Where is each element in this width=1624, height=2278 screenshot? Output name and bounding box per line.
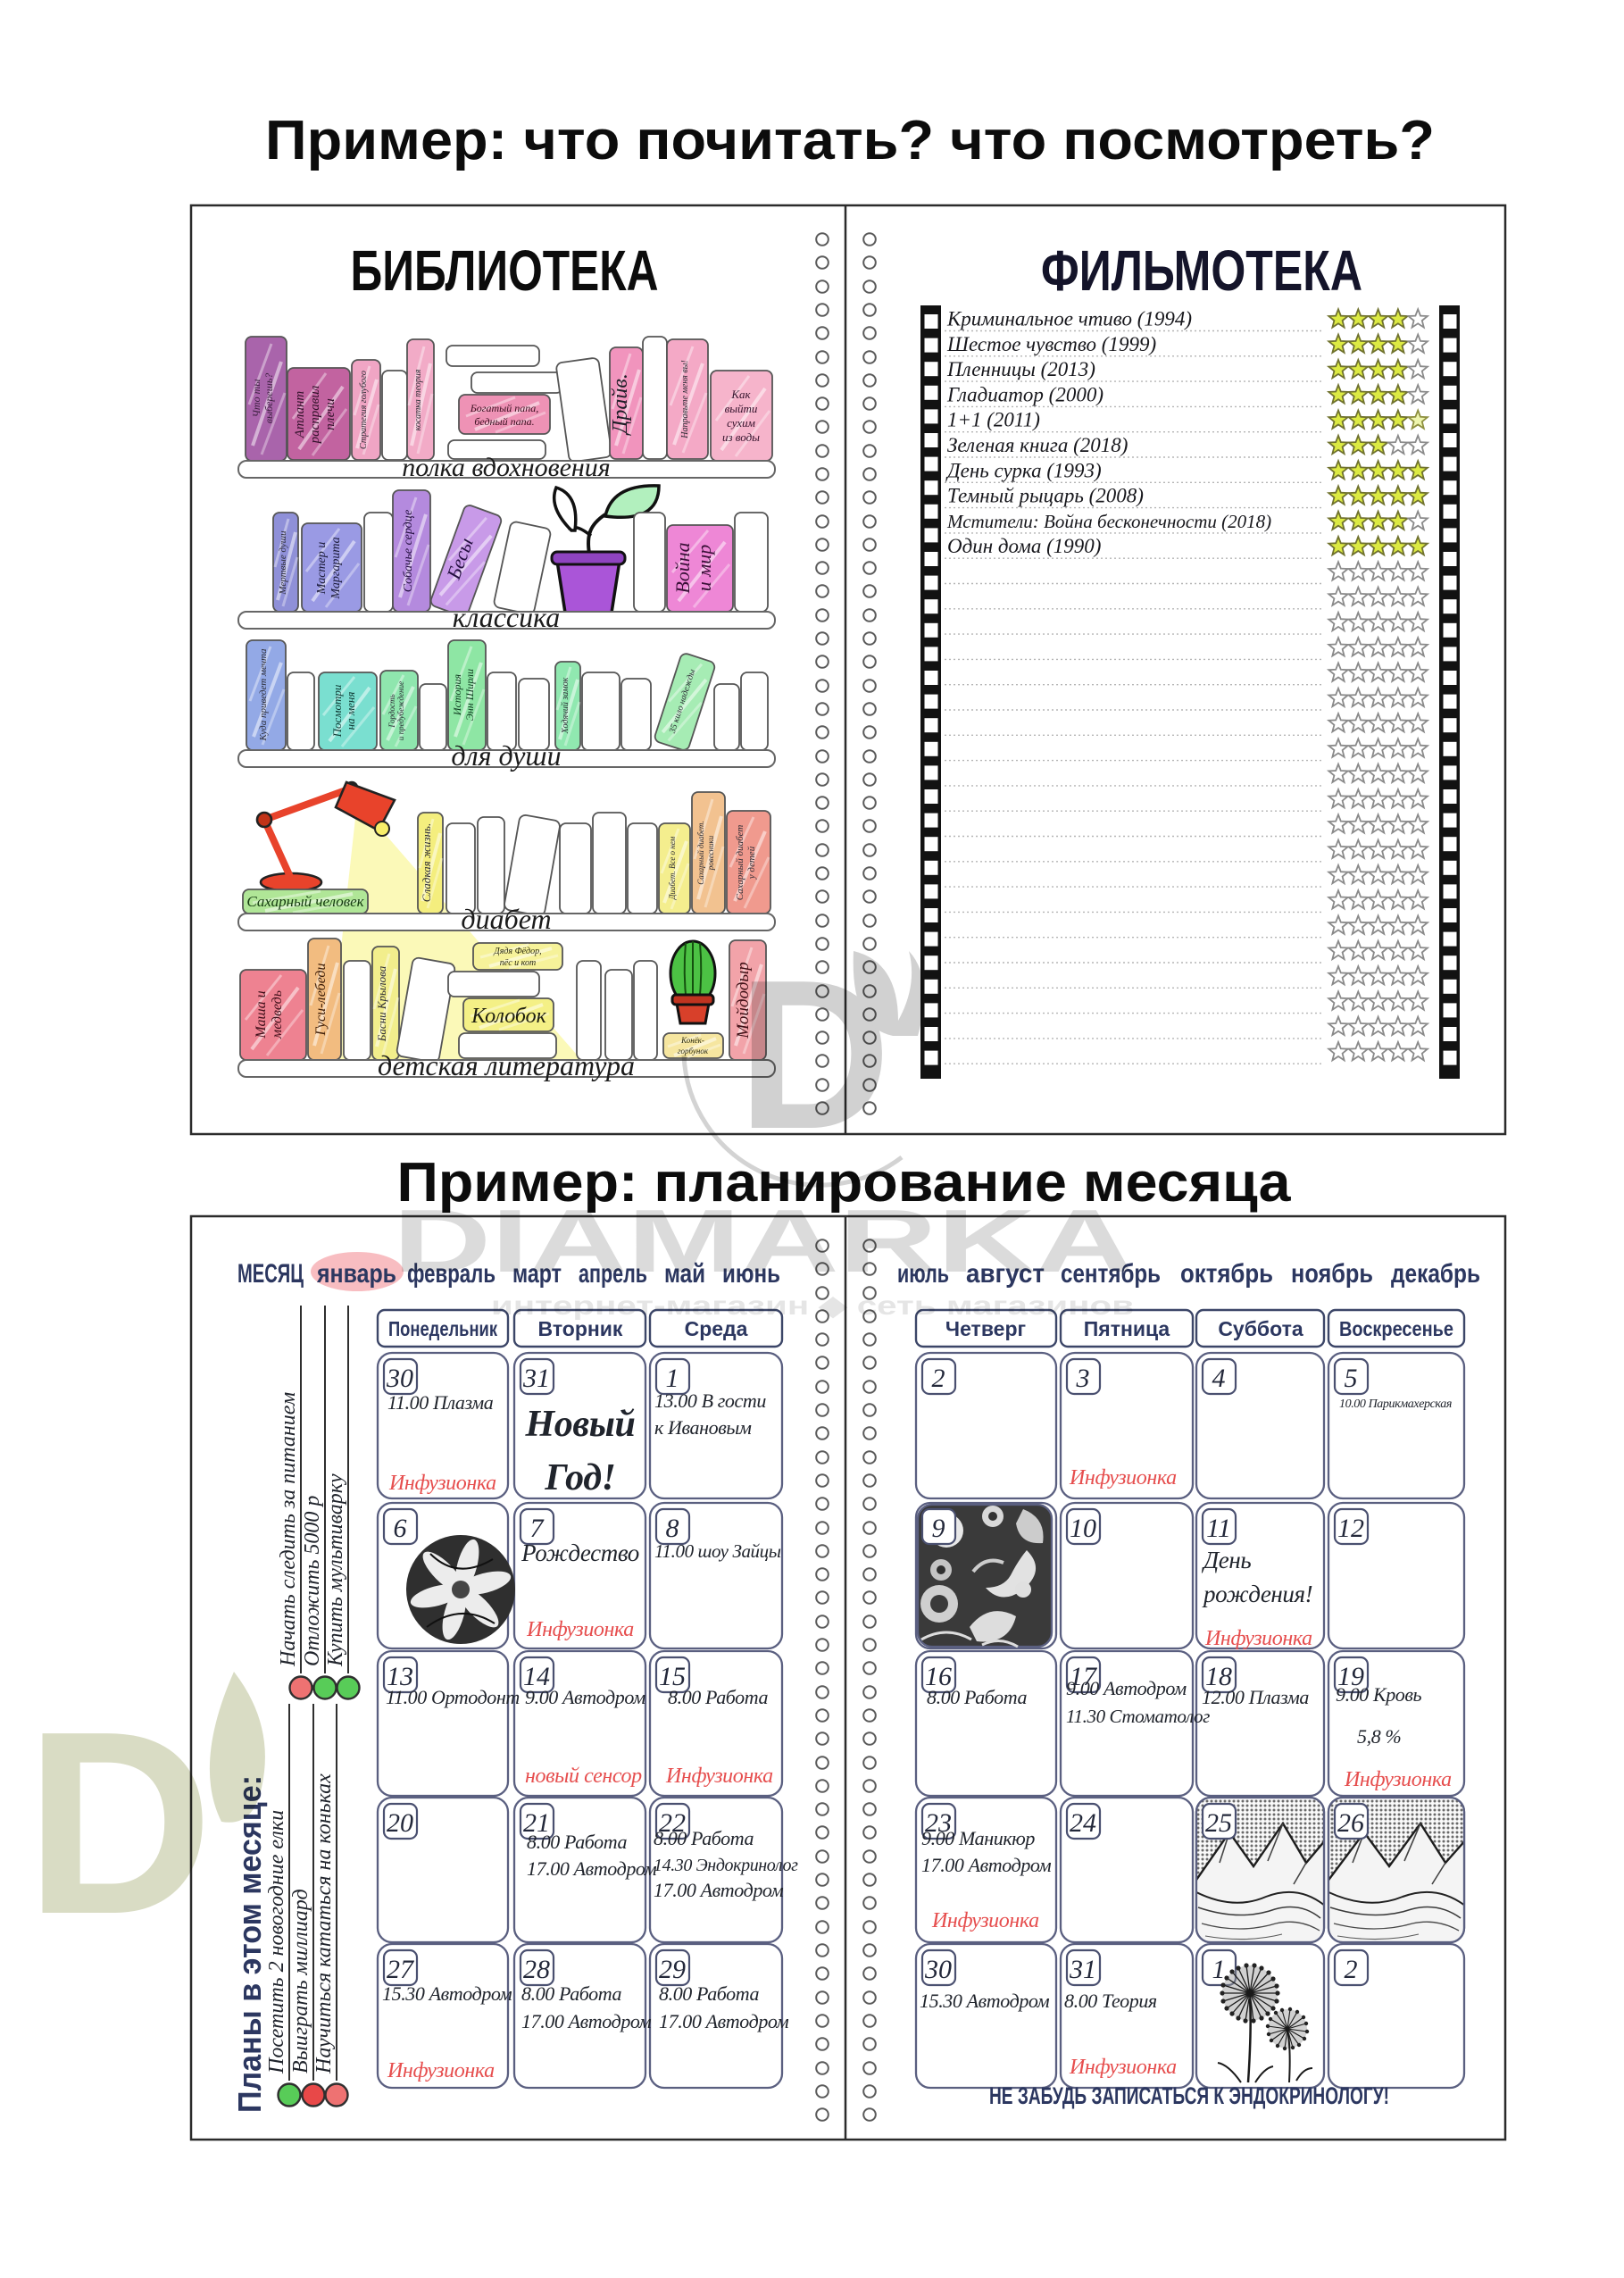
- svg-text:День: День: [1201, 1547, 1251, 1573]
- svg-text:15.30 Автодром: 15.30 Автодром: [382, 1982, 512, 2005]
- svg-text:8: 8: [666, 1514, 679, 1543]
- svg-text:ноябрь: ноябрь: [1291, 1259, 1373, 1289]
- svg-text:9: 9: [932, 1514, 945, 1543]
- svg-text:Басни Крылова: Басни Крылова: [375, 965, 388, 1042]
- svg-text:17.00 Автодром: 17.00 Автодром: [921, 1854, 1052, 1876]
- svg-text:8.00 Работа: 8.00 Работа: [527, 1831, 628, 1853]
- svg-text:Гуси-лебеди: Гуси-лебеди: [313, 963, 329, 1036]
- svg-text:Посмотри: Посмотри: [330, 684, 344, 738]
- svg-text:Гордость: Гордость: [387, 694, 396, 728]
- svg-text:из воды: из воды: [722, 430, 760, 444]
- svg-text:8.00 Работа: 8.00 Работа: [654, 1827, 754, 1849]
- svg-text:и предубеждение: и предубеждение: [396, 681, 405, 740]
- svg-text:17.00 Автодром: 17.00 Автодром: [654, 1879, 784, 1901]
- svg-text:9.00 Автодром: 9.00 Автодром: [1066, 1677, 1187, 1699]
- svg-text:классика: классика: [453, 601, 561, 633]
- svg-text:11.00 Ортодонт: 11.00 Ортодонт: [386, 1686, 520, 1708]
- svg-text:1+1 (2011): 1+1 (2011): [947, 409, 1040, 431]
- svg-text:БИБЛИОТЕКА: БИБЛИОТЕКА: [351, 238, 659, 303]
- svg-text:24: 24: [1070, 1808, 1096, 1838]
- svg-text:25: 25: [1205, 1808, 1232, 1838]
- svg-text:полка вдохновения: полка вдохновения: [402, 453, 611, 482]
- svg-text:плечи: плечи: [323, 398, 337, 430]
- svg-text:9.00 Кровь: 9.00 Кровь: [1336, 1683, 1422, 1706]
- svg-text:Инфузионка: Инфузионка: [388, 1472, 496, 1495]
- svg-text:Диабет. Все о нем: Диабет. Все о нем: [668, 836, 677, 900]
- svg-text:Суббота: Суббота: [1218, 1317, 1303, 1340]
- svg-text:Как: Как: [730, 388, 751, 401]
- svg-text:8.00 Работа: 8.00 Работа: [927, 1686, 1028, 1708]
- svg-text:27: 27: [387, 1955, 415, 1984]
- svg-text:Война: Война: [671, 542, 694, 593]
- svg-text:диабет: диабет: [461, 903, 551, 935]
- svg-text:Драйв.: Драйв.: [609, 373, 632, 436]
- svg-text:Сладкая жизнь.: Сладкая жизнь.: [420, 823, 433, 902]
- svg-text:Инфузионка: Инфузионка: [1069, 1466, 1177, 1489]
- svg-text:10: 10: [1070, 1514, 1096, 1543]
- svg-text:медведь: медведь: [270, 990, 285, 1039]
- svg-text:4: 4: [1212, 1364, 1226, 1393]
- svg-text:28: 28: [523, 1955, 550, 1984]
- svg-text:5,8 %: 5,8 %: [1357, 1725, 1401, 1748]
- svg-text:Выиграть миллиард: Выиграть миллиард: [289, 1889, 312, 2074]
- svg-text:расправил: расправил: [308, 385, 322, 444]
- svg-text:Собачье сердце: Собачье сердце: [402, 510, 415, 593]
- svg-text:Атлант: Атлант: [293, 391, 307, 439]
- svg-text:Гладиатор (2000): Гладиатор (2000): [946, 383, 1103, 405]
- svg-text:горбунок: горбунок: [678, 1047, 709, 1056]
- svg-text:13.00 В гости: 13.00 В гости: [654, 1389, 766, 1412]
- svg-text:Шестое чувство (1999): Шестое чувство (1999): [946, 333, 1156, 355]
- svg-text:Посетить 2 новогодние елки: Посетить 2 новогодние елки: [265, 1810, 288, 2074]
- svg-text:косатка теория: косатка теория: [413, 369, 423, 430]
- svg-text:Инфузионка: Инфузионка: [931, 1909, 1039, 1932]
- svg-text:11.00 Плазма: 11.00 Плазма: [387, 1391, 494, 1414]
- svg-text:новый сенсор: новый сенсор: [525, 1765, 642, 1788]
- svg-text:10.00 Парикмахерская: 10.00 Парикмахерская: [1339, 1398, 1452, 1411]
- svg-text:12: 12: [1337, 1514, 1364, 1543]
- svg-text:8.00 Работа: 8.00 Работа: [668, 1686, 769, 1708]
- svg-text:Сахарный диабет.: Сахарный диабет.: [696, 821, 705, 885]
- svg-text:Новый: Новый: [525, 1404, 636, 1445]
- svg-text:пёс и кот: пёс и кот: [500, 958, 536, 968]
- svg-text:Зеленая книга (2018): Зеленая книга (2018): [947, 434, 1128, 456]
- svg-text:выберешь?: выберешь?: [262, 373, 275, 424]
- svg-text:Мертвые души: Мертвые души: [278, 530, 288, 596]
- svg-text:ровесники: ровесники: [706, 835, 715, 871]
- svg-text:Маргарита: Маргарита: [329, 537, 343, 599]
- svg-text:МЕСЯЦ: МЕСЯЦ: [237, 1259, 304, 1289]
- svg-text:Ходячий замок: Ходячий замок: [561, 677, 570, 734]
- svg-text:Год!: Год!: [544, 1457, 615, 1498]
- svg-text:Дядя Фёдор,: Дядя Фёдор,: [493, 947, 541, 956]
- svg-text:октябрь: октябрь: [1180, 1259, 1273, 1289]
- svg-text:8.00 Теория: 8.00 Теория: [1064, 1990, 1157, 2012]
- svg-text:5: 5: [1345, 1364, 1358, 1393]
- svg-text:20: 20: [387, 1808, 413, 1838]
- svg-text:бедный папа.: бедный папа.: [474, 415, 534, 428]
- svg-text:Конёк-: Конёк-: [680, 1036, 704, 1045]
- svg-text:Богатый папа,: Богатый папа,: [470, 402, 539, 414]
- svg-text:Инфузионка: Инфузионка: [387, 2059, 495, 2082]
- svg-text:Инфузионка: Инфузионка: [1069, 2056, 1177, 2079]
- svg-text:11: 11: [1206, 1514, 1231, 1543]
- svg-text:День сурка (1993): День сурка (1993): [945, 459, 1102, 481]
- svg-text:интернет-магазин ◆ сеть магази: интернет-магазин ◆ сеть магазинов: [491, 1291, 1134, 1321]
- svg-text:26: 26: [1337, 1808, 1364, 1838]
- svg-text:6: 6: [394, 1514, 407, 1543]
- svg-text:8.00 Работа: 8.00 Работа: [521, 1982, 622, 2005]
- svg-text:1: 1: [1212, 1955, 1226, 1984]
- svg-text:рождения!: рождения!: [1202, 1581, 1312, 1607]
- svg-text:11.00 шоу Зайцы: 11.00 шоу Зайцы: [654, 1540, 781, 1562]
- svg-text:Криминальное чтиво (1994): Криминальное чтиво (1994): [946, 308, 1192, 330]
- svg-text:14.30 Эндокринолог: 14.30 Эндокринолог: [654, 1856, 798, 1875]
- svg-text:ФИЛЬМОТЕКА: ФИЛЬМОТЕКА: [1041, 238, 1362, 303]
- svg-text:Купить мультиварку: Купить мультиварку: [324, 1473, 347, 1667]
- svg-text:Что ты: Что ты: [250, 380, 262, 418]
- svg-text:Инфузионка: Инфузионка: [1204, 1627, 1312, 1650]
- svg-text:17.00 Автодром: 17.00 Автодром: [659, 2010, 789, 2032]
- svg-text:Энн Ширли: Энн Ширли: [463, 669, 476, 721]
- svg-text:30: 30: [924, 1955, 952, 1984]
- svg-text:Воскресенье: Воскресенье: [1339, 1317, 1453, 1340]
- svg-text:2: 2: [1345, 1955, 1358, 1984]
- svg-text:12.00 Плазма: 12.00 Плазма: [1202, 1686, 1309, 1708]
- svg-text:для души: для души: [451, 739, 561, 772]
- svg-text:8.00 Работа: 8.00 Работа: [659, 1982, 760, 2005]
- svg-text:9.00 Автодром: 9.00 Автодром: [525, 1686, 645, 1708]
- svg-text:DIAMARKA: DIAMARKA: [393, 1191, 1134, 1291]
- svg-text:30: 30: [386, 1364, 413, 1393]
- svg-text:31: 31: [1069, 1955, 1096, 1984]
- svg-text:Понедельник: Понедельник: [388, 1317, 497, 1340]
- svg-text:Сахарный диабет: Сахарный диабет: [735, 825, 745, 901]
- svg-text:Инфузионка: Инфузионка: [1344, 1768, 1452, 1791]
- svg-text:17.00 Автодром: 17.00 Автодром: [527, 1857, 657, 1880]
- svg-text:декабрь: декабрь: [1391, 1259, 1480, 1289]
- svg-text:Инфузионка: Инфузионка: [665, 1765, 773, 1788]
- svg-text:Отложить 5000 р: Отложить 5000 р: [301, 1496, 324, 1666]
- svg-text:17.00 Автодром: 17.00 Автодром: [521, 2010, 652, 2032]
- svg-text:D: D: [25, 1677, 213, 1968]
- svg-text:и мир: и мир: [693, 545, 715, 592]
- svg-text:Сахарный человек: Сахарный человек: [246, 893, 364, 910]
- svg-text:январь: январь: [316, 1259, 396, 1289]
- svg-text:выйти: выйти: [725, 402, 758, 415]
- svg-text:Инфузионка: Инфузионка: [526, 1618, 634, 1641]
- svg-text:3: 3: [1076, 1364, 1090, 1393]
- svg-text:детская литература: детская литература: [378, 1049, 635, 1081]
- svg-text:9.00 Маникюр: 9.00 Маникюр: [921, 1827, 1035, 1849]
- svg-text:Пленницы (2013): Пленницы (2013): [946, 358, 1095, 380]
- svg-text:Начать следить за питанием: Начать следить за питанием: [277, 1392, 300, 1667]
- svg-text:История: История: [451, 673, 463, 716]
- svg-text:Один дома (1990): Один дома (1990): [947, 535, 1101, 557]
- svg-text:Научиться кататься на коньках: Научиться кататься на коньках: [312, 1773, 336, 2074]
- svg-text:Куда приведет мечта: Куда приведет мечта: [258, 648, 269, 742]
- svg-text:Мстители: Война бесконечности: Мстители: Война бесконечности (2018): [946, 511, 1271, 532]
- svg-text:Рождество: Рождество: [521, 1540, 639, 1566]
- svg-text:Направьте меня вы!: Направьте меня вы!: [680, 360, 690, 439]
- svg-text:Пример: что почитать? что посм: Пример: что почитать? что посмотреть?: [265, 110, 1435, 171]
- svg-text:сухим: сухим: [727, 416, 755, 430]
- svg-text:Темный рыцарь (2008): Темный рыцарь (2008): [947, 485, 1144, 507]
- svg-text:Колобок: Колобок: [471, 1005, 547, 1028]
- svg-text:Планы в этом месяце:: Планы в этом месяце:: [231, 1775, 268, 2113]
- svg-text:к Ивановым: к Ивановым: [654, 1416, 752, 1439]
- svg-text:Мастер и: Мастер и: [315, 542, 329, 596]
- svg-text:Маша и: Маша и: [254, 990, 269, 1039]
- svg-text:29: 29: [659, 1955, 686, 1984]
- svg-text:2: 2: [932, 1364, 945, 1393]
- svg-text:15.30 Автодром: 15.30 Автодром: [920, 1990, 1050, 2012]
- svg-text:31: 31: [522, 1364, 550, 1393]
- svg-text:у детей: у детей: [746, 846, 757, 880]
- svg-text:11.30 Стоматолог: 11.30 Стоматолог: [1066, 1706, 1210, 1727]
- svg-text:на меня: на меня: [344, 692, 357, 730]
- svg-text:НЕ ЗАБУДЬ ЗАПИСАТЬСЯ К ЭНДОКРИ: НЕ ЗАБУДЬ ЗАПИСАТЬСЯ К ЭНДОКРИНОЛОГУ!: [989, 2082, 1389, 2109]
- svg-text:Стратегия голубого: Стратегия голубого: [359, 371, 369, 449]
